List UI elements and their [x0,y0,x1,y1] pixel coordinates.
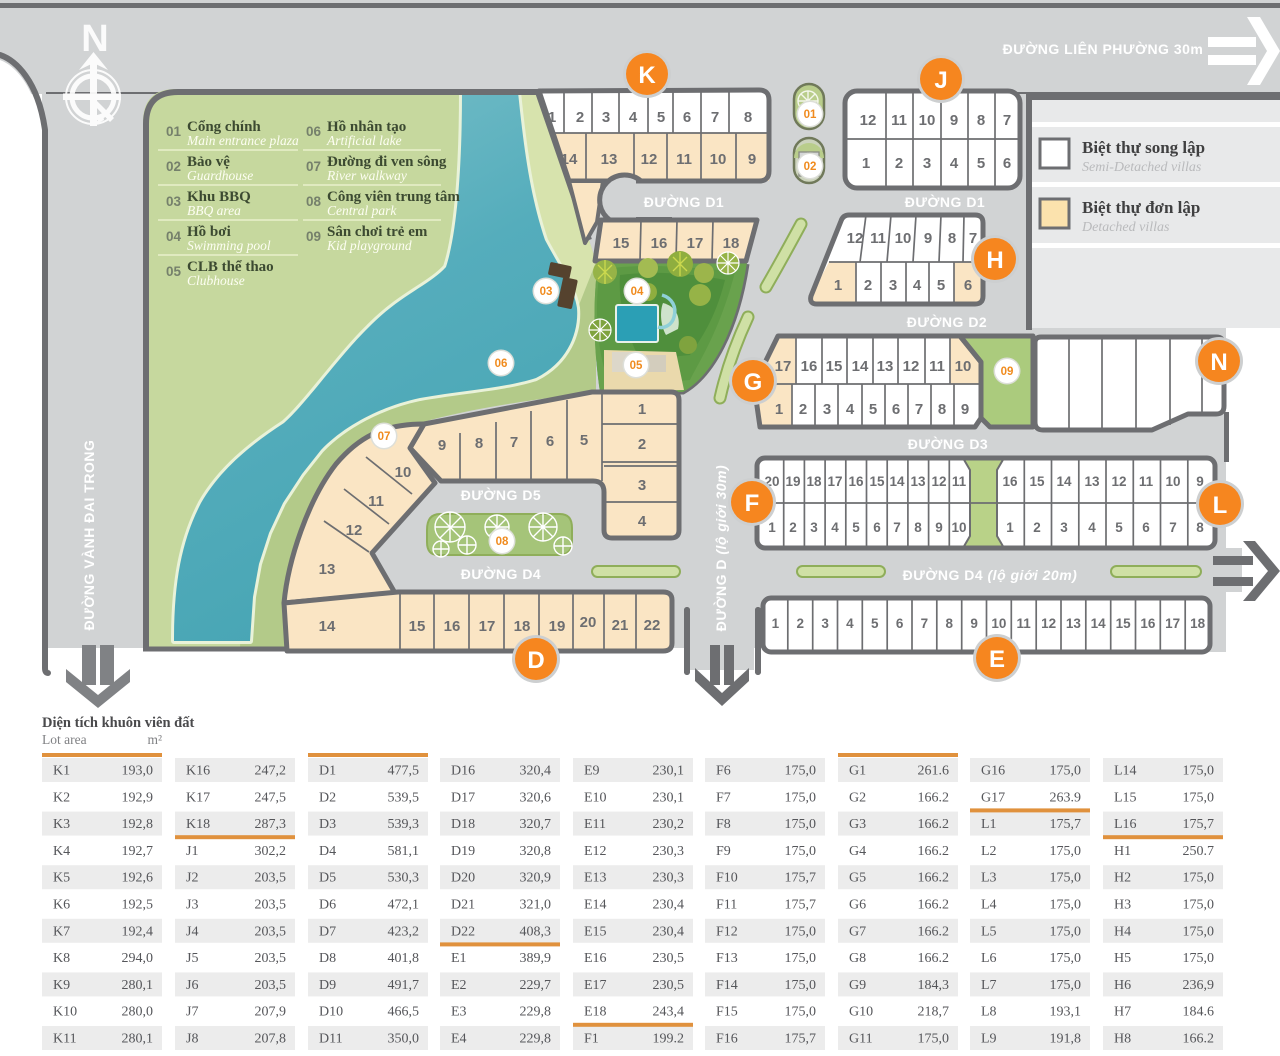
svg-text:5: 5 [657,109,665,126]
svg-text:06: 06 [495,358,508,370]
svg-text:14: 14 [889,474,905,489]
svg-text:166.2: 166.2 [918,817,950,832]
svg-text:166.2: 166.2 [918,871,950,886]
svg-text:15: 15 [826,358,843,375]
svg-text:G8: G8 [849,951,866,966]
svg-text:1: 1 [638,401,646,418]
svg-text:F9: F9 [716,844,731,859]
svg-text:1: 1 [548,109,556,126]
svg-text:8: 8 [475,435,483,452]
svg-text:E1: E1 [451,951,467,966]
svg-text:L4: L4 [981,898,997,913]
svg-text:D7: D7 [319,924,336,939]
svg-text:16: 16 [801,358,818,375]
svg-text:8: 8 [914,520,922,535]
svg-text:G6: G6 [849,898,866,913]
svg-text:01: 01 [804,109,817,121]
svg-text:320,4: 320,4 [520,764,552,779]
svg-text:02: 02 [804,161,817,173]
svg-text:8: 8 [744,109,752,126]
svg-text:9: 9 [935,520,943,535]
svg-text:G7: G7 [849,924,866,939]
svg-text:175,0: 175,0 [785,790,817,805]
svg-text:L1: L1 [981,817,997,832]
svg-text:D21: D21 [451,898,475,913]
svg-text:12: 12 [1041,616,1056,631]
svg-text:Swimming pool: Swimming pool [187,238,271,253]
svg-text:09: 09 [1001,366,1014,378]
svg-text:16: 16 [848,474,864,489]
svg-text:5: 5 [1115,520,1123,535]
svg-text:3: 3 [810,520,818,535]
svg-text:1: 1 [1006,520,1014,535]
svg-text:13: 13 [1084,474,1100,489]
svg-text:03: 03 [166,194,182,209]
svg-text:7: 7 [1003,112,1011,129]
svg-text:2: 2 [895,155,903,172]
svg-text:4: 4 [638,513,647,530]
svg-text:203,5: 203,5 [255,898,287,913]
svg-text:E10: E10 [584,790,607,805]
svg-text:350,0: 350,0 [388,1032,420,1047]
svg-text:2: 2 [638,436,646,453]
svg-text:6: 6 [1142,520,1150,535]
svg-text:L3: L3 [981,871,997,886]
svg-text:175,0: 175,0 [1050,951,1082,966]
svg-text:175,0: 175,0 [1050,978,1082,993]
svg-text:229,8: 229,8 [520,1005,552,1020]
svg-text:408,3: 408,3 [520,924,552,939]
svg-text:ĐƯỜNG D2: ĐƯỜNG D2 [907,313,987,330]
svg-text:203,5: 203,5 [255,871,287,886]
svg-text:320,7: 320,7 [520,817,552,832]
svg-text:F13: F13 [716,951,738,966]
svg-text:6: 6 [896,616,904,631]
svg-text:K: K [638,62,656,89]
svg-text:Central park: Central park [327,203,397,218]
svg-text:17: 17 [479,618,496,635]
svg-text:10: 10 [1165,474,1180,489]
svg-text:J5: J5 [186,951,198,966]
svg-text:E: E [989,646,1005,673]
svg-text:2: 2 [864,277,872,294]
svg-text:D22: D22 [451,924,475,939]
svg-text:D2: D2 [319,790,336,805]
svg-text:193,0: 193,0 [122,764,154,779]
svg-text:F: F [745,490,760,517]
svg-text:Biệt thự đơn lập: Biệt thự đơn lập [1082,198,1200,217]
svg-text:08: 08 [496,536,509,548]
svg-text:320,9: 320,9 [520,871,552,886]
svg-text:F6: F6 [716,764,731,779]
svg-text:184.6: 184.6 [1183,1005,1215,1020]
svg-text:G9: G9 [849,978,866,993]
svg-text:302,2: 302,2 [255,844,287,859]
svg-text:175,0: 175,0 [785,978,817,993]
svg-text:6: 6 [892,401,900,418]
svg-text:3: 3 [923,155,931,172]
svg-text:16: 16 [444,618,461,635]
svg-text:9: 9 [438,437,446,454]
svg-text:H4: H4 [1114,924,1131,939]
svg-text:320,6: 320,6 [520,790,552,805]
svg-text:D9: D9 [319,978,336,993]
svg-text:2: 2 [799,401,807,418]
svg-text:17: 17 [687,235,704,252]
svg-text:G17: G17 [981,790,1005,805]
svg-text:K8: K8 [53,951,70,966]
svg-text:N: N [81,18,108,60]
svg-text:16: 16 [1002,474,1018,489]
svg-text:11: 11 [870,230,886,247]
svg-text:10: 10 [919,112,936,129]
svg-text:K9: K9 [53,978,70,993]
svg-text:11: 11 [952,474,967,489]
svg-text:10: 10 [955,358,972,375]
svg-text:G11: G11 [849,1032,873,1047]
svg-text:H1: H1 [1114,844,1131,859]
svg-text:230,4: 230,4 [653,924,685,939]
svg-text:ĐƯỜNG D1: ĐƯỜNG D1 [644,193,724,210]
svg-text:Main entrance plaza: Main entrance plaza [186,133,299,148]
svg-text:D6: D6 [319,898,336,913]
svg-text:F14: F14 [716,978,738,993]
svg-text:7: 7 [510,434,518,451]
svg-text:N: N [1210,349,1227,376]
svg-text:Artificial lake: Artificial lake [326,133,402,148]
svg-text:13: 13 [319,561,336,578]
svg-text:199.2: 199.2 [653,1032,685,1047]
svg-text:18: 18 [1190,616,1206,631]
svg-text:H: H [986,247,1003,274]
svg-text:4: 4 [846,616,854,631]
svg-text:175,0: 175,0 [1183,790,1215,805]
svg-text:ĐƯỜNG LIÊN PHƯỜNG 30m: ĐƯỜNG LIÊN PHƯỜNG 30m [1003,40,1204,57]
svg-text:D10: D10 [319,1005,343,1020]
svg-text:184,3: 184,3 [918,978,950,993]
svg-text:K5: K5 [53,871,70,886]
svg-text:E12: E12 [584,844,607,859]
svg-text:230,2: 230,2 [653,817,685,832]
svg-text:466,5: 466,5 [388,1005,420,1020]
svg-text:230,5: 230,5 [653,951,685,966]
svg-text:15: 15 [613,235,630,252]
svg-text:192,7: 192,7 [122,844,154,859]
svg-text:401,8: 401,8 [388,951,420,966]
svg-text:D18: D18 [451,817,475,832]
svg-text:203,5: 203,5 [255,951,287,966]
svg-text:H3: H3 [1114,898,1131,913]
svg-text:20: 20 [580,614,597,631]
svg-text:G4: G4 [849,844,866,859]
svg-text:175,0: 175,0 [1183,871,1215,886]
svg-text:175,0: 175,0 [1050,844,1082,859]
svg-text:River walkway: River walkway [326,168,407,183]
svg-text:280,1: 280,1 [122,1032,154,1047]
svg-text:ĐƯỜNG VÀNH ĐAI TRONG: ĐƯỜNG VÀNH ĐAI TRONG [80,440,97,631]
svg-text:175,0: 175,0 [785,764,817,779]
svg-text:243,4: 243,4 [653,1005,685,1020]
svg-text:01: 01 [166,124,182,139]
svg-text:6: 6 [873,520,881,535]
svg-text:G5: G5 [849,871,866,886]
svg-text:193,1: 193,1 [1050,1005,1082,1020]
svg-text:14: 14 [561,151,578,168]
svg-text:10: 10 [991,616,1006,631]
svg-text:Semi-Detached villas: Semi-Detached villas [1082,160,1202,175]
svg-text:175,0: 175,0 [785,1005,817,1020]
svg-text:09: 09 [306,229,321,244]
svg-text:175,0: 175,0 [918,1032,950,1047]
svg-text:J3: J3 [186,898,198,913]
svg-text:175,0: 175,0 [1050,898,1082,913]
svg-text:ĐƯỜNG D4: ĐƯỜNG D4 [461,565,541,582]
svg-text:6: 6 [964,277,972,294]
svg-text:5: 5 [852,520,860,535]
svg-text:15: 15 [1029,474,1045,489]
svg-text:294,0: 294,0 [122,951,154,966]
svg-text:14: 14 [319,618,336,635]
svg-text:Clubhouse: Clubhouse [187,273,245,288]
svg-text:9: 9 [748,151,756,168]
svg-text:175,0: 175,0 [785,924,817,939]
svg-text:H2: H2 [1114,871,1131,886]
svg-text:F8: F8 [716,817,731,832]
svg-text:191,8: 191,8 [1050,1032,1082,1047]
svg-text:12: 12 [931,474,946,489]
svg-text:13: 13 [877,358,894,375]
svg-text:3: 3 [823,401,831,418]
svg-text:F15: F15 [716,1005,738,1020]
svg-text:13: 13 [601,151,618,168]
svg-text:175,7: 175,7 [785,871,817,886]
svg-text:07: 07 [378,431,391,443]
svg-text:D1: D1 [319,764,336,779]
svg-text:12: 12 [1111,474,1126,489]
svg-text:6: 6 [546,433,554,450]
svg-text:ĐƯỜNG D5: ĐƯỜNG D5 [461,486,541,503]
svg-text:581,1: 581,1 [388,844,420,859]
svg-text:3: 3 [1060,520,1068,535]
svg-text:L16: L16 [1114,817,1137,832]
svg-text:D3: D3 [319,817,336,832]
svg-text:250.7: 250.7 [1183,844,1215,859]
svg-text:4: 4 [831,520,839,535]
svg-text:04: 04 [166,229,182,244]
svg-text:L5: L5 [981,924,997,939]
svg-text:203,5: 203,5 [255,924,287,939]
svg-text:L2: L2 [981,844,997,859]
svg-text:2: 2 [796,616,804,631]
svg-text:L14: L14 [1114,764,1137,779]
svg-text:6: 6 [683,109,691,126]
svg-text:9: 9 [1196,474,1204,489]
svg-text:18: 18 [723,235,740,252]
svg-text:K1: K1 [53,764,70,779]
svg-text:03: 03 [540,286,553,298]
svg-text:Detached villas: Detached villas [1081,220,1170,235]
svg-text:10: 10 [895,230,912,247]
svg-text:L8: L8 [981,1005,997,1020]
svg-text:229,8: 229,8 [520,1032,552,1047]
svg-text:321,0: 321,0 [520,898,552,913]
svg-text:5: 5 [580,432,588,449]
svg-text:F11: F11 [716,898,737,913]
svg-text:L: L [1213,492,1228,519]
svg-text:17: 17 [775,358,792,375]
svg-text:10: 10 [951,520,966,535]
svg-text:ĐƯỜNG D4 (lộ giới 20m): ĐƯỜNG D4 (lộ giới 20m) [903,566,1078,583]
svg-text:491,7: 491,7 [388,978,420,993]
svg-text:K7: K7 [53,924,70,939]
svg-text:175,0: 175,0 [1183,898,1215,913]
svg-text:1: 1 [775,401,783,418]
svg-text:12: 12 [641,151,658,168]
svg-text:9: 9 [950,112,958,129]
svg-text:08: 08 [306,194,322,209]
svg-text:8: 8 [977,112,985,129]
svg-text:22: 22 [644,617,661,634]
svg-text:539,3: 539,3 [388,817,420,832]
svg-text:5: 5 [871,616,879,631]
svg-text:7: 7 [915,401,923,418]
svg-text:530,3: 530,3 [388,871,420,886]
svg-text:G16: G16 [981,764,1005,779]
svg-text:230,4: 230,4 [653,898,685,913]
svg-text:H7: H7 [1114,1005,1131,1020]
svg-text:2: 2 [1033,520,1041,535]
svg-text:E16: E16 [584,951,607,966]
svg-text:H5: H5 [1114,951,1131,966]
svg-text:06: 06 [306,124,322,139]
svg-text:K6: K6 [53,898,70,913]
svg-text:L15: L15 [1114,790,1137,805]
svg-text:07: 07 [306,159,321,174]
svg-text:D5: D5 [319,871,336,886]
svg-text:13: 13 [1066,616,1082,631]
svg-text:4: 4 [913,277,922,294]
svg-text:10: 10 [395,464,412,481]
svg-text:280,0: 280,0 [122,1005,154,1020]
svg-text:F10: F10 [716,871,738,886]
svg-text:4: 4 [846,401,855,418]
svg-text:11: 11 [368,493,384,510]
svg-text:5: 5 [937,277,945,294]
svg-text:G3: G3 [849,817,866,832]
svg-text:477,5: 477,5 [388,764,420,779]
svg-text:8: 8 [945,616,953,631]
svg-text:K4: K4 [53,844,70,859]
svg-text:229,7: 229,7 [520,978,552,993]
svg-text:K17: K17 [186,790,210,805]
svg-text:ĐƯỜNG D1: ĐƯỜNG D1 [905,193,985,210]
svg-text:247,2: 247,2 [255,764,287,779]
svg-text:389,9: 389,9 [520,951,552,966]
svg-text:K18: K18 [186,817,210,832]
svg-text:14: 14 [852,358,869,375]
svg-text:3: 3 [889,277,897,294]
svg-text:Biệt thự song lập: Biệt thự song lập [1082,138,1205,157]
svg-text:263.9: 263.9 [1050,790,1082,805]
svg-text:166.2: 166.2 [1183,1032,1215,1047]
svg-text:D8: D8 [319,951,336,966]
svg-text:236,9: 236,9 [1183,978,1215,993]
svg-text:G: G [744,369,763,396]
svg-text:J8: J8 [186,1032,198,1047]
svg-text:166.2: 166.2 [918,951,950,966]
svg-text:02: 02 [166,159,181,174]
svg-text:4: 4 [950,155,959,172]
svg-text:14: 14 [1091,616,1107,631]
svg-text:1: 1 [862,155,870,172]
svg-text:192,5: 192,5 [122,898,154,913]
svg-text:L6: L6 [981,951,997,966]
svg-text:E18: E18 [584,1005,607,1020]
svg-text:175,0: 175,0 [785,844,817,859]
svg-text:166.2: 166.2 [918,844,950,859]
svg-text:175,0: 175,0 [1183,924,1215,939]
svg-text:04: 04 [631,286,644,298]
svg-text:Guardhouse: Guardhouse [187,168,253,183]
svg-text:175,0: 175,0 [1050,871,1082,886]
svg-text:7: 7 [1169,520,1177,535]
svg-text:J: J [934,67,947,94]
svg-text:9: 9 [924,230,932,247]
svg-text:13: 13 [910,474,926,489]
svg-text:175,0: 175,0 [1050,764,1082,779]
svg-text:175,0: 175,0 [1183,764,1215,779]
svg-text:18: 18 [514,618,531,635]
svg-text:166.2: 166.2 [918,924,950,939]
svg-text:280,1: 280,1 [122,978,154,993]
svg-text:E17: E17 [584,978,607,993]
svg-text:320,8: 320,8 [520,844,552,859]
svg-text:5: 5 [869,401,877,418]
svg-text:8: 8 [948,230,956,247]
svg-text:203,5: 203,5 [255,978,287,993]
svg-text:11: 11 [929,358,945,375]
svg-text:15: 15 [409,618,426,635]
svg-text:175,7: 175,7 [1183,817,1215,832]
svg-text:287,3: 287,3 [255,817,287,832]
svg-text:175,7: 175,7 [1050,817,1082,832]
svg-text:17: 17 [827,474,842,489]
svg-text:E4: E4 [451,1032,467,1047]
svg-text:11: 11 [1139,474,1154,489]
svg-text:Kid playground: Kid playground [326,238,412,253]
svg-text:K11: K11 [53,1032,77,1047]
svg-text:F1: F1 [584,1032,599,1047]
svg-text:230,1: 230,1 [653,790,685,805]
svg-text:15: 15 [869,474,885,489]
svg-text:230,3: 230,3 [653,871,685,886]
svg-text:E3: E3 [451,1005,467,1020]
svg-text:230,1: 230,1 [653,764,685,779]
svg-text:m²: m² [147,732,162,747]
svg-text:12: 12 [346,522,363,539]
svg-text:F7: F7 [716,790,731,805]
svg-text:05: 05 [630,360,643,372]
svg-text:F12: F12 [716,924,738,939]
svg-text:J6: J6 [186,978,198,993]
svg-text:12: 12 [847,230,864,247]
svg-text:247,5: 247,5 [255,790,287,805]
svg-text:14: 14 [1056,474,1072,489]
svg-text:12: 12 [903,358,920,375]
svg-text:Lot area: Lot area [42,732,87,747]
svg-text:2: 2 [789,520,797,535]
svg-text:9: 9 [970,616,978,631]
